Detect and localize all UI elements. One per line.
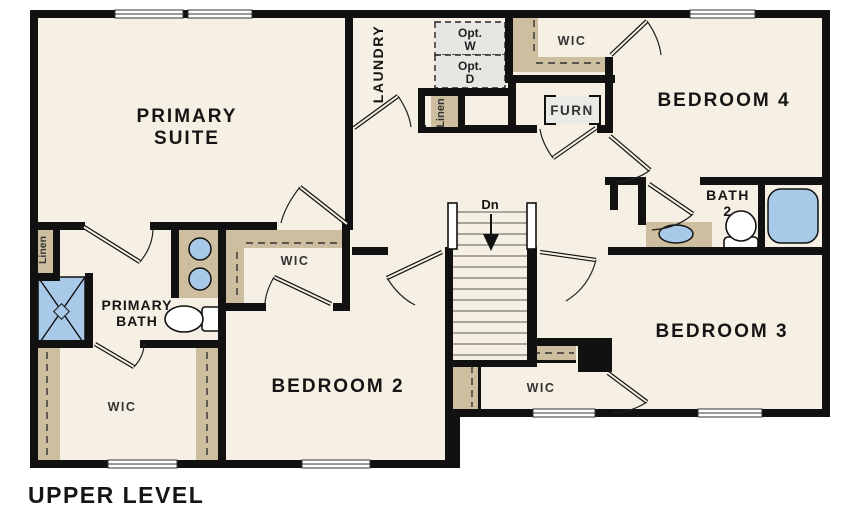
opt-dryer-label-line1: Opt. (458, 59, 482, 73)
furnace-label: FURN (550, 103, 594, 118)
bath2-label-line2: 2 (723, 203, 732, 219)
stair-railing-left (448, 203, 457, 249)
bath2-label-line1: BATH (706, 187, 750, 203)
primary-vanity-sink-1 (189, 238, 211, 260)
floor-plan-drawing: PRIMARY SUITE LAUNDRY Opt. W Opt. D WIC … (0, 0, 850, 520)
window-primary-suite-1 (115, 10, 183, 18)
bedroom2-label: BEDROOM 2 (271, 376, 404, 397)
primary-bath-label-line1: PRIMARY (101, 297, 172, 313)
window-primary-suite-2 (188, 10, 252, 18)
stairs-down-label: Dn (481, 197, 498, 212)
window-bedroom3 (698, 409, 762, 417)
window-wic-left (108, 460, 177, 468)
wic-left-shelf-west (38, 348, 60, 460)
opt-washer-label-line2: W (464, 39, 476, 53)
wic-top-label: WIC (558, 34, 587, 48)
primary-bath-label-line2: BATH (116, 313, 158, 329)
wic-mid-shelf-top (226, 230, 342, 248)
window-wic-bottom (533, 409, 595, 417)
opt-washer-label-line1: Opt. (458, 26, 482, 40)
primary-toilet (165, 306, 220, 332)
opt-dryer-label-line2: D (466, 72, 475, 86)
window-bedroom2 (302, 460, 370, 468)
bath2-tub (768, 189, 818, 243)
primary-suite-label-line2: SUITE (154, 128, 220, 149)
floor-plan-page: PRIMARY SUITE LAUNDRY Opt. W Opt. D WIC … (0, 0, 850, 520)
bedroom3-label: BEDROOM 3 (655, 321, 788, 342)
linen-left-label: Linen (37, 236, 49, 264)
wic-mid-label: WIC (281, 254, 310, 268)
primary-vanity-sink-2 (189, 268, 211, 290)
wic-bottom-shelf-left (453, 363, 478, 409)
stair-railing-right (527, 203, 536, 249)
window-bedroom4 (690, 10, 755, 18)
page-title: UPPER LEVEL (28, 482, 204, 508)
wic-bottom-label: WIC (527, 381, 556, 395)
wic-bottom-shelf-edge (478, 363, 481, 409)
bedroom4-label: BEDROOM 4 (657, 90, 790, 111)
primary-shower (38, 277, 85, 345)
wic-top-shelf-bottom (513, 57, 605, 72)
linen-top-label: Linen (435, 98, 447, 128)
wic-bottom-shelf-top-edge (531, 360, 576, 363)
wic-left-label: WIC (108, 400, 137, 414)
primary-suite-label-line1: PRIMARY (137, 106, 238, 127)
laundry-label: LAUNDRY (370, 25, 386, 103)
wic-mid-shelf-left (226, 248, 244, 303)
